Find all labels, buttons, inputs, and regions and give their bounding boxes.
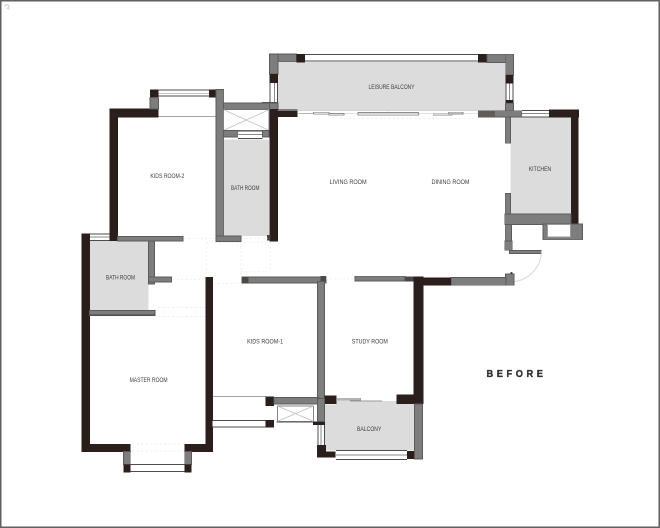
svg-text:BALCONY: BALCONY (357, 427, 382, 433)
svg-text:KIDS ROOM-1: KIDS ROOM-1 (247, 340, 284, 346)
svg-text:DINING ROOM: DINING ROOM (432, 180, 470, 186)
svg-text:LIVING ROOM: LIVING ROOM (330, 180, 367, 186)
svg-text:BATH ROOM: BATH ROOM (106, 275, 135, 281)
svg-text:STUDY ROOM: STUDY ROOM (352, 340, 388, 346)
svg-text:KITCHEN: KITCHEN (529, 167, 552, 173)
svg-text:KIDS ROOM-2: KIDS ROOM-2 (150, 174, 185, 180)
svg-text:LEISURE BALCONY: LEISURE BALCONY (369, 85, 415, 91)
svg-text:BEFORE: BEFORE (487, 369, 547, 380)
svg-text:MASTER ROOM: MASTER ROOM (130, 378, 168, 384)
svg-text:BATH ROOM: BATH ROOM (231, 186, 260, 192)
